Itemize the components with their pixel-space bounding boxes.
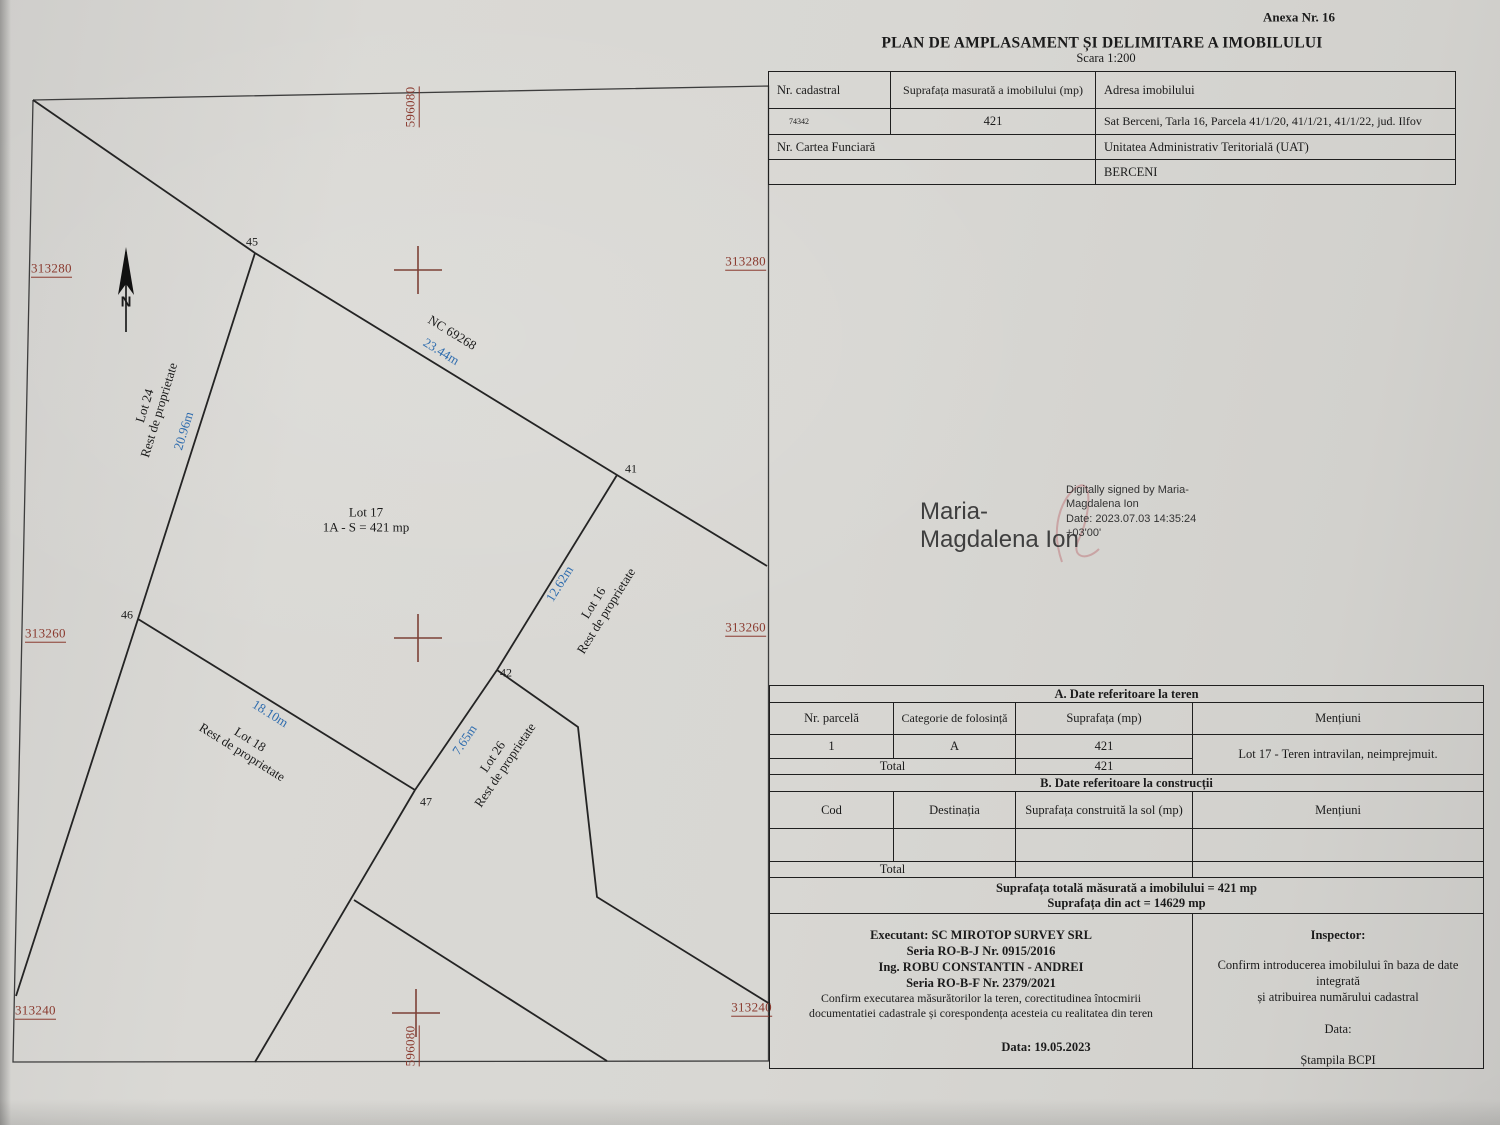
b-total-label: Total <box>770 862 1016 878</box>
executant-date: Data: 19.05.2023 <box>772 1039 1190 1055</box>
inspector-title: Inspector: <box>1195 927 1481 943</box>
total-measured-line: Suprafața totală măsurată a imobilului =… <box>772 881 1481 896</box>
lot17-line1: Lot 17 <box>323 505 409 520</box>
parcel-boundaries <box>16 100 770 1062</box>
a-header-nr-parcela: Nr. parcelă <box>770 703 894 735</box>
cell-uat-label: Unitatea Administrativ Teritorială (UAT) <box>1096 135 1456 160</box>
easting-bottom-text: 596080 <box>403 1026 420 1067</box>
cell-suprafata-value: 421 <box>891 109 1096 135</box>
northing-left-2: 313260 <box>25 627 66 642</box>
boundary-lower-branch <box>354 900 607 1061</box>
inspector-stamp: Ștampila BCPI <box>1195 1052 1481 1068</box>
section-a-title: A. Date referitoare la teren <box>770 686 1484 703</box>
inspector-block: Inspector: Confirm introducerea imobilul… <box>1195 914 1481 1068</box>
b-header-suprafata: Suprafața construită la sol (mp) <box>1016 792 1193 829</box>
signature-name: Maria- Magdalena Ion <box>920 498 1079 553</box>
a-total-label: Total <box>770 759 1016 775</box>
signature-detail-line4: +03'00' <box>1066 526 1196 540</box>
header-table: Nr. cadastral Suprafața masurată a imobi… <box>768 71 1456 185</box>
cell-nr-cadastral-label: Nr. cadastral <box>769 72 891 109</box>
executant-line5: Confirm executarea măsurătorilor la tere… <box>772 991 1190 1006</box>
section-b-title: B. Date referitoare la construcții <box>770 775 1484 792</box>
cell-adresa-label: Adresa imobilului <box>1096 72 1456 109</box>
signature-name-line1: Maria- <box>920 498 1079 526</box>
land-data-table: A. Date referitoare la teren Nr. parcelă… <box>769 685 1484 1069</box>
northing-left-3: 313240 <box>15 1004 56 1019</box>
grid-cross <box>394 614 442 662</box>
executant-line6: documentatiei cadastrale și corespondenț… <box>772 1006 1190 1021</box>
plan-frame <box>13 86 769 1062</box>
a-mentiuni-value: Lot 17 - Teren intravilan, neimprejmuit. <box>1193 735 1484 775</box>
cell-cartea-funciara-value <box>769 160 1096 185</box>
signature-detail-line3: Date: 2023.07.03 14:35:24 <box>1066 512 1196 526</box>
b-header-mentiuni: Mențiuni <box>1193 792 1484 829</box>
annex-label: Anexa Nr. 16 <box>1263 11 1335 26</box>
northing-text: 313280 <box>31 261 72 278</box>
signature-detail-line1: Digitally signed by Maria- <box>1066 483 1196 497</box>
a-header-suprafata: Suprafața (mp) <box>1016 703 1193 735</box>
cell-adresa-value: Sat Berceni, Tarla 16, Parcela 41/1/20, … <box>1096 109 1456 135</box>
cell-cartea-funciara-label: Nr. Cartea Funciară <box>769 135 1096 160</box>
a-row-nr: 1 <box>770 735 894 759</box>
inspector-cell: Inspector: Confirm introducerea imobilul… <box>1193 914 1484 1069</box>
lot17-label: Lot 17 1A - S = 421 mp <box>323 505 409 534</box>
a-header-categorie: Categorie de folosință <box>894 703 1016 735</box>
executant-line2: Seria RO-B-J Nr. 0915/2016 <box>772 943 1190 959</box>
b-row-mentiuni <box>1193 829 1484 862</box>
easting-label-top: 596080 <box>404 87 419 128</box>
northing-text: 313260 <box>25 626 66 643</box>
b-total-suprafata <box>1016 862 1193 878</box>
executant-line4: Seria RO-B-F Nr. 2379/2021 <box>772 975 1190 991</box>
easting-top-text: 596080 <box>403 87 420 128</box>
point-47: 47 <box>420 795 432 808</box>
page-title: PLAN DE AMPLASAMENT ȘI DELIMITARE A IMOB… <box>882 34 1323 51</box>
inspector-line1: Confirm introducerea imobilului în baza … <box>1195 957 1481 973</box>
northing-right-3: 313240 <box>731 1001 772 1016</box>
inspector-line2: integrată <box>1195 973 1481 989</box>
point-41: 41 <box>625 462 637 475</box>
north-letter: N <box>121 295 132 312</box>
boundary-topleft <box>33 100 255 253</box>
a-row-categorie: A <box>894 735 1016 759</box>
executant-line3: Ing. ROBU CONSTANTIN - ANDREI <box>772 959 1190 975</box>
b-row-suprafata <box>1016 829 1193 862</box>
b-total-mentiuni <box>1193 862 1484 878</box>
b-row-cod <box>770 829 894 862</box>
grid-crosses <box>392 246 442 1037</box>
a-row-suprafata: 421 <box>1016 735 1193 759</box>
a-total-value: 421 <box>1016 759 1193 775</box>
northing-left-1: 313280 <box>31 262 72 277</box>
northing-text: 313240 <box>15 1003 56 1020</box>
signature-name-line2: Magdalena Ion <box>920 526 1079 554</box>
northing-right-1: 313280 <box>725 255 766 270</box>
inspector-date-label: Data: <box>1195 1021 1481 1037</box>
cell-nr-cadastral-value: 74342 <box>769 109 891 135</box>
boundary-lot26-east <box>497 670 770 1004</box>
signature-detail-line2: Magdalena Ion <box>1066 497 1196 511</box>
total-act-line: Suprafața din act = 14629 mp <box>772 896 1481 911</box>
b-row-destinatia <box>894 829 1016 862</box>
boundary-west <box>16 253 255 996</box>
executant-block: Executant: SC MIROTOP SURVEY SRL Seria R… <box>772 914 1190 1055</box>
cadastral-plan-document: Anexa Nr. 16 PLAN DE AMPLASAMENT ȘI DELI… <box>0 0 1500 1125</box>
executant-line1: Executant: SC MIROTOP SURVEY SRL <box>772 927 1190 943</box>
northing-text: 313280 <box>725 254 766 271</box>
signature-details: Digitally signed by Maria- Magdalena Ion… <box>1066 483 1196 540</box>
boundary-lot18-south <box>255 790 415 1062</box>
northing-text: 313240 <box>731 1000 772 1017</box>
executant-cell: Executant: SC MIROTOP SURVEY SRL Seria R… <box>770 914 1193 1069</box>
easting-label-bottom: 596080 <box>404 1026 419 1067</box>
a-header-mentiuni: Mențiuni <box>1193 703 1484 735</box>
northing-text: 313260 <box>725 620 766 637</box>
point-42: 42 <box>500 666 512 679</box>
point-46: 46 <box>121 608 133 621</box>
cell-uat-value: BERCENI <box>1096 160 1456 185</box>
north-arrow-icon <box>118 247 134 332</box>
lot17-line2: 1A - S = 421 mp <box>323 520 409 535</box>
b-header-cod: Cod <box>770 792 894 829</box>
totals-cell: Suprafața totală măsurată a imobilului =… <box>770 878 1484 914</box>
northing-right-2: 313260 <box>725 621 766 636</box>
scale-label: Scara 1:200 <box>1076 51 1135 65</box>
point-45: 45 <box>246 235 258 248</box>
b-header-destinatia: Destinația <box>894 792 1016 829</box>
cell-suprafata-label: Suprafața masurată a imobilului (mp) <box>891 72 1096 109</box>
inspector-line3: și atribuirea numărului cadastral <box>1195 989 1481 1005</box>
grid-cross <box>394 246 442 294</box>
